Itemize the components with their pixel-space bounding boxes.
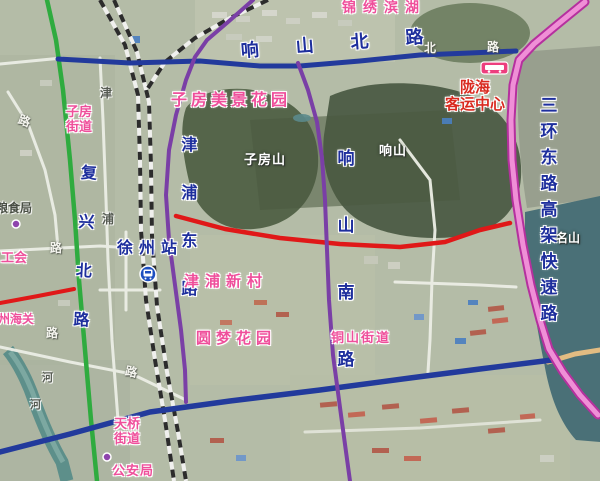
place-tianqiao-subdistrict[interactable]: 天桥 街道 [114,418,140,448]
fragment-pu: 浦 [102,213,114,227]
place-jinxiu-binhu[interactable]: 锦绣滨湖 [342,0,426,16]
place-yuanmeng-garden[interactable]: 圆梦花园 [196,330,276,347]
fragment-lu3: 路 [46,327,58,341]
mountain-zifangshan: 子房山 [244,154,286,169]
place-zifang-subdistrict[interactable]: 子房 街道 [66,106,92,136]
mountain-xiangshan: 响山 [379,145,407,160]
place-jinpu-xincun[interactable]: 津浦新村 [184,273,268,290]
satellite-map-canvas[interactable]: 响山北路 津浦东路 响山南路 复兴北路 三环东路高架快速路 徐州站 陇海 客运中… [0,0,600,481]
place-zifang-scenic-garden[interactable]: 子房美景花园 [171,91,291,109]
road-label-third-ring: 三环东路高架快速路 [536,96,556,330]
fragment-he2: 河 [30,399,41,412]
fragment-he1: 河 [42,372,53,385]
place-customs[interactable]: 州海关 [0,313,34,327]
road-label-jinpu-east: 津浦东路 [178,136,196,328]
place-public-security-bureau[interactable]: 公安局 [112,465,154,480]
fragment-lu-white: 路 [487,41,499,55]
fragment-bei-white: 北 [424,42,436,56]
train-station-icon[interactable] [140,266,156,282]
place-tongshan-subdistrict[interactable]: 铜山街道 [331,332,391,347]
bus-icon[interactable] [481,62,508,74]
fragment-jin: 津 [100,87,112,101]
fragment-lu2: 路 [50,242,62,256]
place-grain-bureau[interactable]: 粮食局 [0,202,32,216]
bus-terminal-label[interactable]: 陇海 客运中心 [438,79,512,114]
road-label-xiangshan-south: 响山南路 [333,149,353,417]
place-labor-union[interactable]: 工会 [1,252,27,267]
railway-station-label[interactable]: 徐州站 [117,239,183,257]
mountain-mingshan: 名山 [556,232,580,246]
